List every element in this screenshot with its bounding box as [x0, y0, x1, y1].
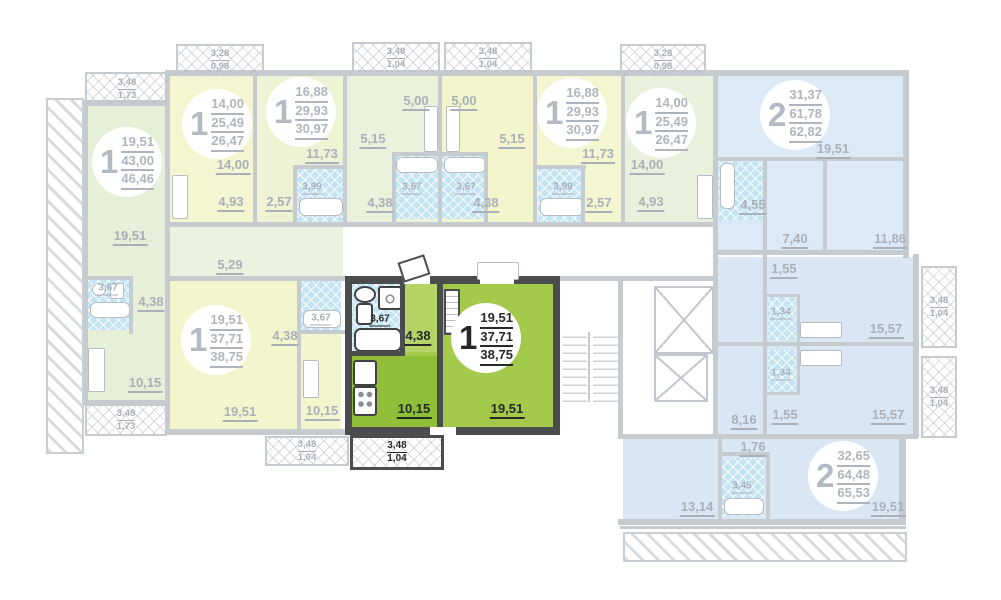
balcony: 3,280,98 [176, 44, 264, 76]
apartment-rooms-count: 2 [768, 96, 786, 134]
room-area-label: 3,67 [401, 182, 422, 195]
kitchen-counter [353, 360, 377, 386]
room-area-label: 4,38 [404, 328, 431, 346]
balcony-area: 3,48 [930, 295, 949, 308]
balcony-area: 3,48 [930, 385, 949, 398]
living-area: 16,88 [295, 84, 328, 103]
apartment-rooms-count: 1 [274, 93, 292, 131]
apartment-rooms-count: 1 [190, 105, 208, 143]
balcony-area: 3,48 [118, 77, 137, 90]
apartment-area: 37,71 [480, 329, 513, 348]
room-area-label: 19,51 [871, 499, 906, 517]
room-area-label: 3,45 [731, 481, 752, 494]
balcony-area-reduced: 0,98 [654, 61, 673, 73]
room-area-label: 5,15 [498, 131, 525, 149]
room-area-label: 19,51 [490, 401, 525, 419]
wall [440, 152, 488, 156]
elevator-shaft [654, 354, 708, 402]
balcony-area: 3,48 [117, 408, 136, 421]
room-area-label: 4,38 [271, 328, 298, 346]
room-area-label: 3,99 [301, 182, 322, 195]
apartment-rooms-count: 1 [459, 319, 477, 357]
room-area-label: 4,93 [217, 194, 244, 212]
balcony-area-reduced: 1,73 [118, 90, 137, 102]
bathtub [540, 198, 584, 216]
wall [343, 70, 347, 227]
balcony: 3,280,98 [620, 44, 706, 76]
room-area-label: 11,73 [305, 146, 339, 164]
apartment-area: 29,93 [295, 103, 328, 122]
wall-dark [553, 276, 560, 435]
wall [293, 165, 297, 225]
wall [766, 294, 800, 297]
balcony-area-reduced: 1,04 [387, 453, 406, 466]
room-area-label: 19,51 [816, 141, 851, 159]
room-area-label: 1,55 [770, 261, 797, 279]
balcony-area: 3,48 [479, 46, 498, 59]
wall [392, 152, 396, 224]
apartment-info-left[interactable]: 1 19,5143,0046,46 [92, 127, 162, 197]
balcony-area: 3,48 [298, 439, 317, 452]
room-area-label: 1,76 [739, 439, 766, 457]
room-area-label: 10,15 [397, 401, 432, 419]
apartment-area: 25,49 [211, 115, 244, 134]
room-area-label: 13,14 [680, 499, 715, 517]
wall [484, 152, 488, 224]
kitchen-unit [88, 348, 105, 392]
room-area-label: 3,99 [552, 182, 573, 195]
room-area-label: 19,51 [113, 228, 148, 246]
apartment-area: 29,93 [566, 104, 599, 123]
apartment-area: 25,49 [655, 114, 688, 133]
wall [438, 70, 442, 227]
wall [297, 330, 345, 334]
apartment-rooms-count: 1 [545, 94, 563, 132]
apartment-info-2-bottom[interactable]: 2 32,6564,4865,53 [808, 441, 878, 511]
balcony-rail [620, 526, 906, 529]
room-area-label: 3,67 [455, 182, 476, 195]
balcony: 3,481,04 [921, 266, 957, 348]
total-area: 65,53 [837, 485, 870, 504]
adjacent-section-hatch [46, 98, 84, 454]
balcony: 3,481,73 [85, 72, 169, 106]
apartment-rooms-count: 1 [189, 321, 207, 359]
wall [83, 276, 133, 280]
floor-plan: 3,481,73 3,280,98 3,481,04 3,481,04 3,28… [0, 0, 1001, 600]
bathtub [90, 302, 130, 318]
kitchen-unit [424, 106, 438, 152]
balcony-area-reduced: 1,04 [930, 308, 949, 320]
wall [713, 157, 903, 161]
door-gap [430, 427, 456, 435]
room-area-label: 1,34 [770, 307, 791, 320]
living-area: 14,00 [211, 96, 244, 115]
room-area-label: 5,15 [359, 131, 386, 149]
total-area: 38,75 [210, 349, 243, 368]
wall [129, 276, 133, 334]
wall-dark [345, 351, 405, 356]
wall [621, 70, 625, 227]
living-area: 32,65 [837, 448, 870, 467]
balcony-area-reduced: 1,73 [117, 421, 136, 433]
stair-flight [562, 332, 587, 402]
wall-dark [437, 283, 443, 429]
kitchen-unit [446, 106, 460, 152]
elevator-shaft [654, 286, 714, 354]
room-area-label: 1,34 [770, 368, 791, 381]
wall [797, 296, 800, 394]
balcony: 3,481,04 [921, 356, 957, 438]
wall [713, 250, 909, 255]
balcony-area: 3,28 [654, 48, 673, 61]
bathtub [396, 157, 438, 173]
total-area: 26,47 [211, 133, 244, 152]
wall [713, 342, 916, 346]
total-area: 62,82 [789, 124, 822, 143]
room-area-label: 8,16 [730, 412, 757, 430]
room-area-label: 5,29 [216, 257, 243, 275]
wall [766, 392, 800, 395]
apartment-info-2-top[interactable]: 2 31,3761,7862,82 [760, 80, 830, 150]
sink [354, 286, 376, 303]
total-area: 46,46 [121, 171, 154, 190]
room-area-label: 5,00 [402, 93, 429, 111]
balcony-area: 3,28 [211, 48, 230, 61]
apartment-area: 61,78 [789, 106, 822, 125]
living-area: 19,51 [480, 310, 513, 329]
room-area-label: 14,00 [216, 157, 251, 175]
bathtub [724, 498, 764, 515]
washing-machine [378, 286, 402, 310]
room-area-label: 4,38 [472, 195, 499, 213]
balcony-area-reduced: 0,98 [211, 61, 230, 73]
room-area-label: 15,57 [871, 407, 906, 425]
room-area-label: 11,73 [581, 146, 615, 164]
apartment-area: 64,48 [837, 467, 870, 486]
wall [618, 434, 918, 439]
apartment-info-14-right[interactable]: 1 14,0025,4926,47 [626, 88, 696, 158]
total-area: 38,75 [480, 347, 513, 366]
total-area: 30,97 [295, 121, 328, 140]
room-area-label: 7,40 [781, 231, 808, 249]
room-area-label: 4,55 [739, 197, 766, 215]
wall [533, 70, 537, 227]
wall [253, 70, 257, 227]
balcony: 3,481,04 [444, 42, 532, 74]
wall [165, 429, 350, 435]
kitchen-unit [697, 175, 713, 219]
room-area-label: 3,67 [97, 283, 118, 296]
apartment-rooms-count: 1 [100, 143, 118, 181]
balcony-area: 3,48 [387, 440, 406, 454]
bathtub [444, 157, 486, 173]
room-area-label: 2,57 [265, 194, 292, 212]
balcony-highlighted: 3,481,04 [350, 435, 444, 470]
room-area-label: 4,93 [637, 194, 664, 212]
bathtub [299, 198, 343, 216]
balcony-area-reduced: 1,04 [479, 59, 498, 71]
balcony: 3,481,04 [352, 42, 440, 74]
terrace-hatch [623, 532, 907, 562]
balcony: 3,481,73 [85, 404, 167, 436]
room-area-label: 14,00 [630, 157, 665, 175]
apartment-area: 43,00 [121, 153, 154, 172]
corridor-left-area [170, 227, 343, 276]
room-area-label: 19,51 [223, 404, 258, 422]
room-area-label: 4,38 [366, 195, 393, 213]
stair-divider [588, 332, 590, 402]
apartment-info-highlighted[interactable]: 1 19,5137,7138,75 [451, 303, 521, 373]
room-area-label: 11,86 [873, 231, 907, 249]
bathtub [354, 328, 402, 352]
wall [165, 276, 352, 281]
stair-flight [593, 332, 618, 402]
wall [392, 152, 440, 156]
room-area-label: 4,38 [137, 294, 164, 312]
room-area-label: 5,00 [450, 93, 477, 111]
living-area: 19,51 [210, 312, 243, 331]
wall [766, 452, 770, 522]
room-area-label: 15,57 [869, 321, 904, 339]
total-area: 26,47 [655, 132, 688, 151]
bathtub [720, 163, 735, 209]
apartment-rooms-count: 1 [634, 104, 652, 142]
kitchen-unit [303, 360, 319, 398]
wall [297, 276, 301, 432]
balcony-area: 3,48 [387, 46, 406, 59]
apartment-info-1688-right[interactable]: 1 16,8829,9330,97 [537, 78, 607, 148]
apartment-area: 37,71 [210, 331, 243, 350]
total-area: 30,97 [566, 122, 599, 141]
wall [763, 254, 767, 434]
apartment-info-37-left[interactable]: 1 19,5137,7138,75 [181, 305, 251, 375]
kitchen-unit [800, 322, 842, 338]
wall [903, 70, 909, 258]
room-area-label: 3,67 [369, 314, 390, 327]
stove [353, 386, 377, 416]
balcony-area-reduced: 1,04 [298, 452, 317, 464]
kitchen-unit [172, 175, 188, 219]
room-area-label: 10,15 [128, 375, 163, 393]
room-area-label: 1,55 [771, 407, 798, 425]
room-area-label: 10,15 [305, 403, 340, 421]
room-area-label: 3,67 [310, 313, 331, 326]
wall [823, 161, 827, 253]
apartment-info-1688-left[interactable]: 1 16,8829,9330,97 [266, 77, 336, 147]
wall [913, 254, 919, 438]
living-area: 14,00 [655, 95, 688, 114]
wall [165, 70, 170, 435]
balcony-area-reduced: 1,04 [387, 59, 406, 71]
door-gap [480, 276, 514, 284]
apartment-rooms-count: 2 [816, 457, 834, 495]
kitchen-unit [800, 350, 842, 366]
wall-dark [345, 276, 560, 284]
wall [557, 276, 713, 281]
wall [718, 437, 722, 522]
wall [535, 165, 586, 169]
balcony-area-reduced: 1,04 [930, 398, 949, 410]
living-area: 19,51 [121, 134, 154, 153]
wall [618, 276, 623, 434]
balcony: 3,481,04 [265, 436, 349, 466]
wall [618, 519, 906, 525]
room-area-label: 2,57 [585, 195, 612, 213]
entrance-door-gap [564, 434, 614, 439]
living-area: 31,37 [789, 87, 822, 106]
wall [293, 165, 345, 169]
apartment-info-14-left[interactable]: 1 14,0025,4926,47 [182, 89, 252, 159]
living-area: 16,88 [566, 85, 599, 104]
